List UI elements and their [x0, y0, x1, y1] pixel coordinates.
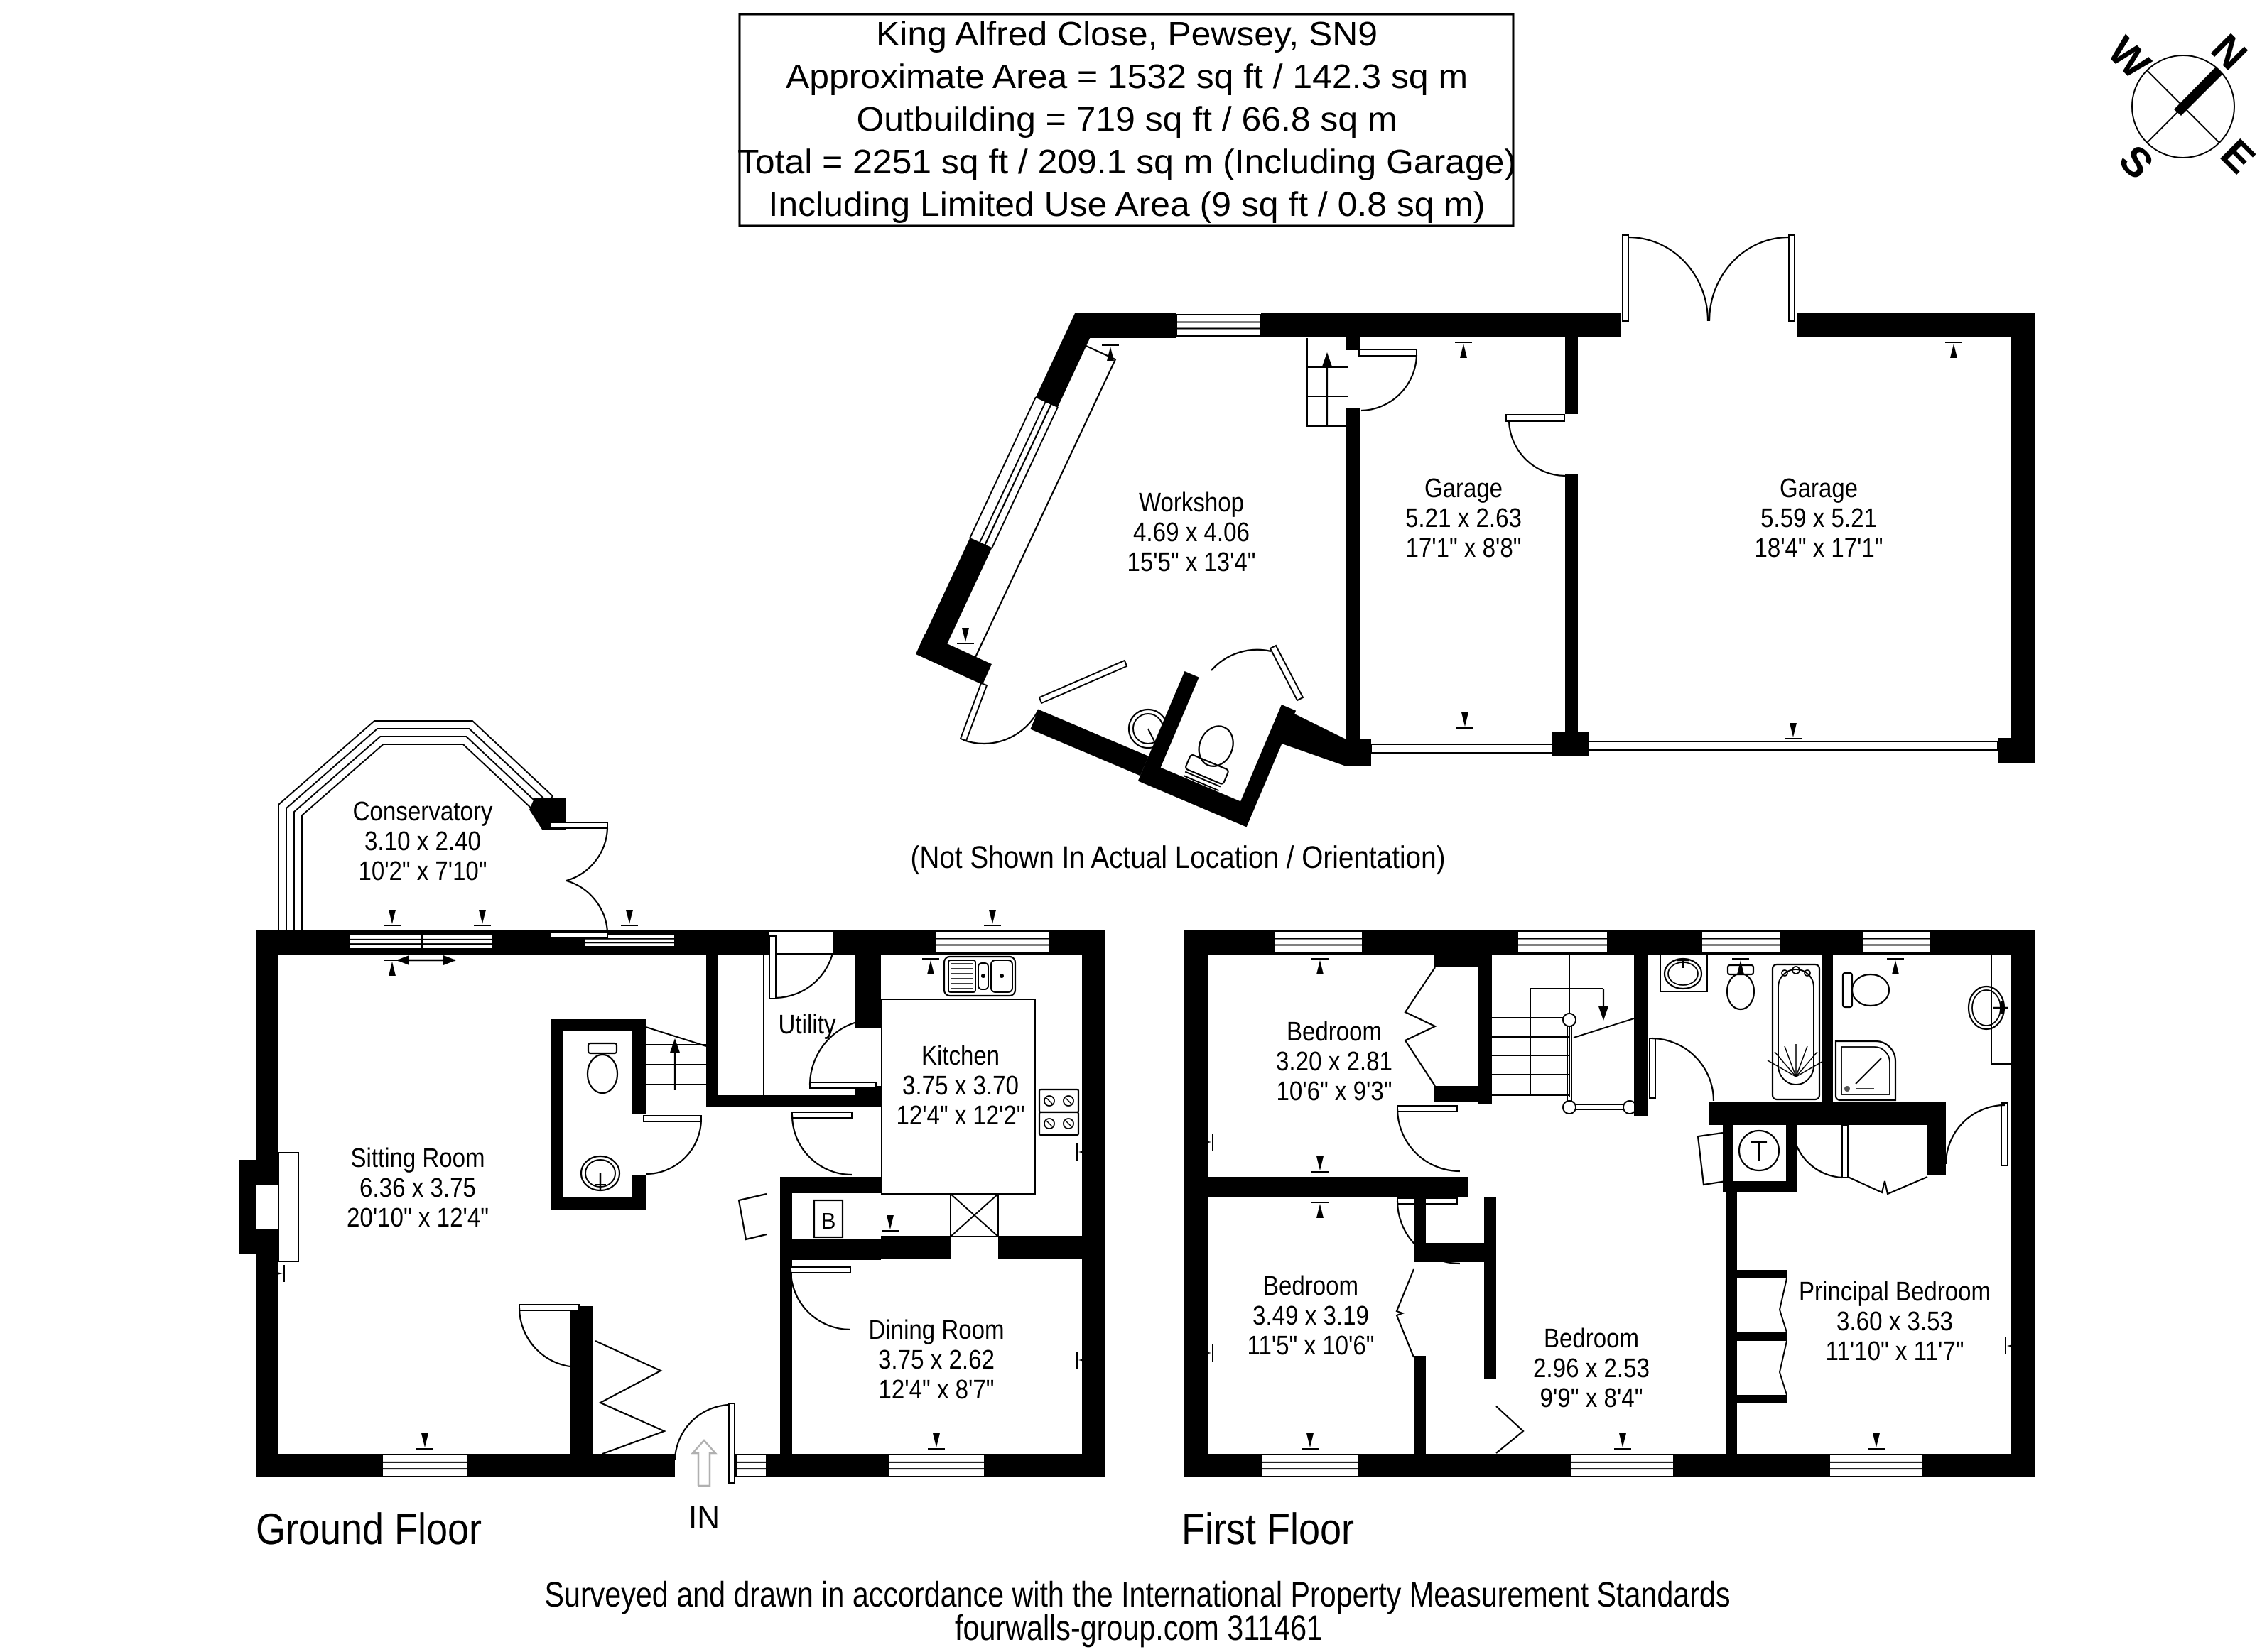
- svg-text:IN: IN: [688, 1499, 720, 1536]
- svg-text:Sitting Room6.36 x 3.7520'10": Sitting Room6.36 x 3.7520'10" x 12'4": [347, 1143, 489, 1233]
- svg-text:Utility: Utility: [779, 1010, 836, 1040]
- svg-text:Bedroom3.49 x 3.1911'5" x 10'6: Bedroom3.49 x 3.1911'5" x 10'6": [1248, 1271, 1375, 1361]
- svg-text:Bedroom2.96 x 2.539'9" x 8'4": Bedroom2.96 x 2.539'9" x 8'4": [1533, 1324, 1650, 1413]
- svg-text:Dining Room3.75 x 2.6212'4" x: Dining Room3.75 x 2.6212'4" x 8'7": [869, 1315, 1005, 1405]
- svg-text:fourwalls-group.com 311461: fourwalls-group.com 311461: [955, 1608, 1323, 1648]
- svg-text:B: B: [821, 1208, 836, 1234]
- svg-text:(Not Shown In Actual Location: (Not Shown In Actual Location / Orientat…: [911, 840, 1446, 875]
- svg-text:Conservatory3.10 x 2.4010'2" x: Conservatory3.10 x 2.4010'2" x 7'10": [353, 797, 493, 886]
- svg-text:Workshop4.69 x 4.0615'5" x 13': Workshop4.69 x 4.0615'5" x 13'4": [1127, 488, 1256, 577]
- svg-text:Ground Floor: Ground Floor: [256, 1505, 482, 1554]
- svg-text:T: T: [1751, 1136, 1768, 1167]
- svg-text:First Floor: First Floor: [1181, 1505, 1354, 1554]
- svg-text:Bedroom3.20 x 2.8110'6" x 9'3": Bedroom3.20 x 2.8110'6" x 9'3": [1276, 1017, 1392, 1107]
